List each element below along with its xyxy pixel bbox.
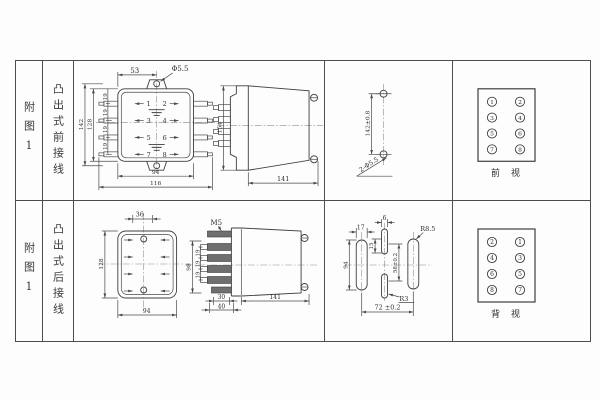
dim-141-label: 141 xyxy=(270,294,281,301)
front-terminal-5: 5 xyxy=(490,131,494,138)
dim-53-label: 53 xyxy=(130,67,139,75)
rear-terminal-arrows xyxy=(124,240,170,291)
dim-141-label: 141 xyxy=(277,175,289,183)
pitch-label-2: 19 xyxy=(196,260,202,267)
dim-17-label: 17 xyxy=(357,224,365,231)
front-terminal-2: 2 xyxy=(518,99,522,106)
panel-cutout-plan: 17 94 6 15 58±0.2 R8.5 R3 xyxy=(325,201,452,341)
pitch-label-3: 19 xyxy=(196,271,202,278)
terminal-block-outline xyxy=(478,229,535,302)
back-terminal-5: 6 xyxy=(490,271,494,278)
dim-horizontal-span-label: 72 ±0.2 xyxy=(375,303,401,311)
m5-stud-top xyxy=(207,231,231,237)
rear-wiring-dimension-drawing: 36 128 94 xyxy=(74,201,324,341)
dim-94-label: 94 xyxy=(143,308,151,315)
front-terminal-8: 8 xyxy=(518,147,522,154)
back-view-caption: 背 视 xyxy=(491,308,521,320)
terminal-8: 8 xyxy=(163,151,167,159)
rear-screws xyxy=(301,235,308,291)
wiring-label-cell-row1: 凸出式前接线 xyxy=(43,61,74,201)
hole-diameter-label: Φ5.5 xyxy=(172,65,189,73)
dimension-drawings-cell-row2: 36 128 94 xyxy=(74,201,325,341)
pitch-label-1: 19 xyxy=(103,93,109,100)
fig-label: 附图1 xyxy=(24,242,35,301)
back-terminal-1: 2 xyxy=(490,239,494,246)
thread-label: M5 xyxy=(210,219,222,227)
front-view-caption: 前 视 xyxy=(491,167,521,179)
dim-hole-spacing-label: 142±0.8 xyxy=(365,110,372,136)
dim-15-label: 15 xyxy=(369,242,375,250)
front-terminal-4: 4 xyxy=(518,115,522,122)
terminal-front-view: 1 2 3 4 5 6 7 8 前 视 xyxy=(453,61,590,200)
wiring-label-cell-row2: 凸出式后接线 xyxy=(43,201,74,341)
dim-128-label: 128 xyxy=(98,258,105,270)
wiring-label-rear: 凸出式后接线 xyxy=(53,223,64,319)
rear-screws xyxy=(311,94,318,163)
pitch-label-4: 19 xyxy=(103,142,109,149)
pitch-label-2: 19 xyxy=(103,109,109,116)
back-terminal-7: 8 xyxy=(490,287,494,294)
dim-128-label: 128 xyxy=(86,119,93,131)
terminal-back-view: 2 1 4 3 6 5 8 7 背 视 xyxy=(453,201,590,341)
relay-rear-view: 36 128 94 xyxy=(98,210,190,318)
wiring-label-front: 凸出式前接线 xyxy=(53,83,64,179)
back-terminal-4: 3 xyxy=(518,255,522,262)
front-terminal-7: 7 xyxy=(490,147,494,154)
m5-stud-bottom xyxy=(211,287,231,293)
terminal-1: 1 xyxy=(147,100,151,108)
dim-116-label: 116 xyxy=(150,180,162,187)
dim-94-label: 94 xyxy=(152,169,160,176)
dim-142-label: 142 xyxy=(78,119,85,131)
holes-callout-label: 2-Φ5.5 xyxy=(357,155,380,174)
dim-98-label: 98 xyxy=(186,263,193,271)
terminal-circles: 1 2 3 4 5 6 7 8 xyxy=(487,97,524,154)
terminal-3: 3 xyxy=(147,117,151,125)
pitch-label-3: 19 xyxy=(103,126,109,133)
terminal-2: 2 xyxy=(163,100,167,108)
panel-drilling-plan: 142±0.8 2-Φ5.5 xyxy=(325,61,452,200)
terminal-view-cell-row1: 1 2 3 4 5 6 7 8 前 视 xyxy=(453,61,590,201)
dim-40-label: 40 xyxy=(218,303,226,310)
relay-side-view: 154 141 xyxy=(213,86,323,186)
dim-vertical-span-label: 58±0.2 xyxy=(393,253,399,273)
front-terminal-6: 6 xyxy=(518,131,522,138)
back-terminal-8: 7 xyxy=(518,287,522,294)
front-terminal-3: 3 xyxy=(490,115,494,122)
radius-small-label: R3 xyxy=(399,295,408,303)
cutout-plan-cell-row2: 17 94 6 15 58±0.2 R8.5 R3 xyxy=(325,201,453,341)
front-wiring-dimension-drawing: 1 2 3 4 5 6 7 8 53 Φ5.5 xyxy=(74,61,324,200)
terminal-view-cell-row2: 2 1 4 3 6 5 8 7 背 视 xyxy=(453,201,590,341)
dim-30-label: 30 xyxy=(218,294,226,301)
terminal-6: 6 xyxy=(163,134,167,142)
fig-label-cell-row1: 附图1 xyxy=(16,61,43,201)
terminal-circles: 2 1 4 3 6 5 8 7 xyxy=(487,237,524,294)
relay-front-view: 1 2 3 4 5 6 7 8 53 Φ5.5 xyxy=(78,65,215,190)
radius-big-label: R8.5 xyxy=(420,225,435,233)
dim-94-label: 94 xyxy=(342,261,349,269)
dim-154-label: 154 xyxy=(216,122,223,134)
dim-36-label: 36 xyxy=(136,210,144,218)
dim-6-label: 6 xyxy=(383,215,387,222)
terminal-4: 4 xyxy=(163,117,167,125)
figure-table: 附图1 凸出式前接线 xyxy=(15,60,591,342)
back-terminal-2: 1 xyxy=(518,239,522,246)
fig-label: 附图1 xyxy=(24,101,35,160)
terminal-7: 7 xyxy=(147,151,151,159)
back-terminal-6: 5 xyxy=(518,271,522,278)
pitch-label-1: 19 xyxy=(196,249,202,256)
rear-terminal-studs xyxy=(200,244,231,284)
back-terminal-3: 4 xyxy=(490,255,494,262)
terminal-5: 5 xyxy=(147,134,151,142)
drill-plan-cell-row1: 142±0.8 2-Φ5.5 xyxy=(325,61,453,201)
dimension-drawings-cell-row1: 1 2 3 4 5 6 7 8 53 Φ5.5 xyxy=(74,61,325,201)
relay-rear-side-view: M5 98 19 19 19 xyxy=(186,219,319,313)
terminal-block-outline xyxy=(478,89,535,161)
fig-label-cell-row2: 附图1 xyxy=(16,201,43,341)
front-terminal-1: 1 xyxy=(490,99,494,106)
